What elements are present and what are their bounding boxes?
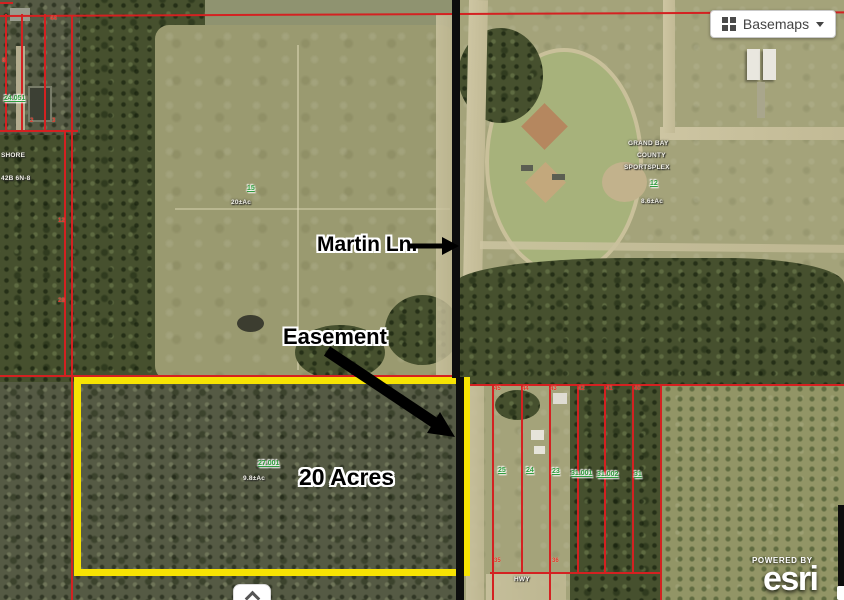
parcel-number-label: 23 (552, 468, 560, 475)
parcel-number-label: 31.002 (597, 471, 618, 478)
survey-number-label: 45 (494, 386, 501, 392)
map-area-label: 9.8±Ac (243, 475, 265, 482)
attribution: POWERED BY esri (752, 556, 844, 594)
survey-number-label: 35 (494, 558, 501, 564)
parcel-number-label: 31.001 (571, 470, 592, 477)
expand-panel-button[interactable] (233, 584, 271, 600)
basemap-grid-icon (722, 17, 736, 31)
survey-number-label: 41 (606, 386, 613, 392)
survey-number-label: 2 (30, 118, 33, 124)
map-area-label: 42B 6N-8 (1, 175, 30, 182)
map-area-label: GRAND BAY (628, 140, 669, 147)
map-area-label: SPORTSPLEX (624, 164, 670, 171)
basemaps-button-label: Basemaps (743, 16, 809, 32)
map-canvas[interactable]: Martin Ln. Easement 20 Acres 24.0511527.… (0, 0, 844, 600)
parcel-number-label: 12 (650, 180, 658, 187)
corner-control-button[interactable] (837, 586, 844, 600)
parcel-number-label: 25 (498, 467, 506, 474)
survey-number-label: 3 (52, 118, 55, 124)
parcel-number-label: 24 (526, 467, 534, 474)
tiny-label-layer: 24.0511527.0011225242331.00131.0023120±A… (0, 0, 844, 600)
martin-ln-arrow (408, 234, 460, 258)
map-area-label: 20±Ac (231, 199, 251, 206)
parcel-number-label: 27.001 (258, 460, 279, 467)
esri-logo: esri (763, 565, 844, 594)
survey-number-label: 36 (552, 558, 559, 564)
chevron-up-icon (244, 591, 260, 600)
parcel-number-label: 31 (634, 471, 642, 478)
survey-number-label: 28 (58, 298, 65, 304)
parcel-number-label: 24.051 (4, 95, 25, 102)
map-area-label: COUNTY (637, 152, 666, 159)
map-area-label: HWY (514, 576, 530, 583)
parcel-number-label: 15 (247, 185, 255, 192)
survey-number-label: 44 (522, 386, 529, 392)
acreage-label: 20 Acres (299, 464, 394, 491)
survey-number-label: 40 (634, 386, 641, 392)
chevron-down-icon (816, 22, 824, 27)
survey-number-label: 44 (50, 16, 57, 22)
easement-arrow (321, 345, 461, 441)
survey-number-label: 12 (58, 218, 65, 224)
map-area-label: 8.6±Ac (641, 198, 663, 205)
map-area-label: SHORE (1, 152, 25, 159)
survey-number-label: 43 (550, 386, 557, 392)
survey-number-label: 42 (578, 386, 585, 392)
map-viewer: Martin Ln. Easement 20 Acres 24.0511527.… (0, 0, 844, 600)
road-label: Martin Ln. (317, 233, 417, 257)
survey-number-label: 8 (2, 58, 5, 64)
basemaps-button[interactable]: Basemaps (710, 10, 836, 38)
